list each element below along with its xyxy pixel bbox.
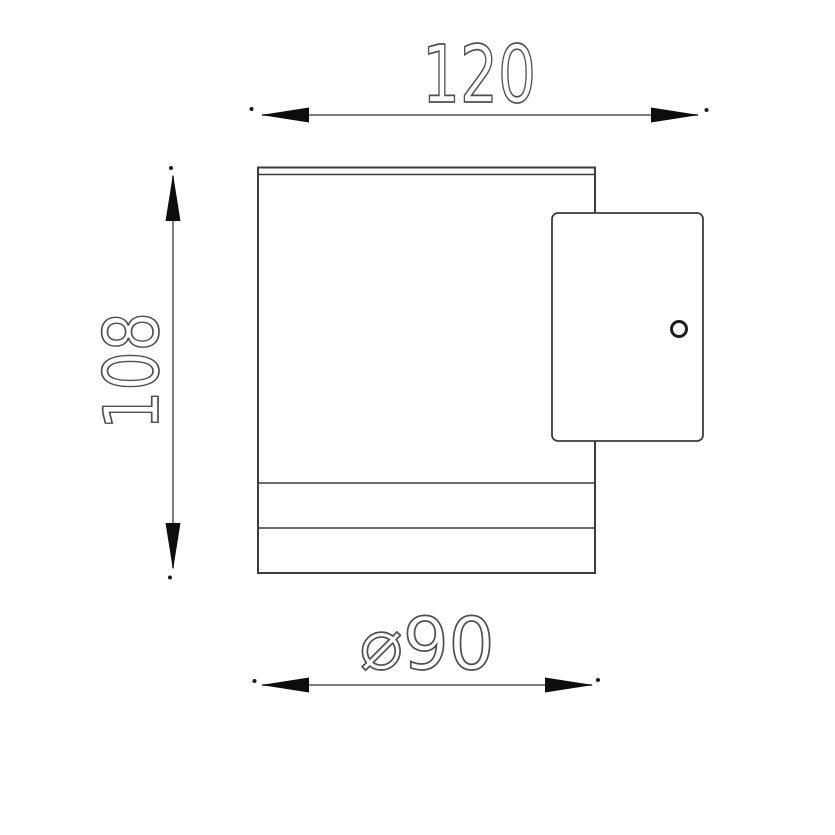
- height-arrowhead-bottom-icon: [166, 523, 181, 570]
- height-dimension: 108: [87, 166, 181, 580]
- lamp-body-outline: [258, 168, 595, 574]
- height-dim-end-dot-top: [169, 166, 173, 170]
- diameter-dim-end-dot-right: [596, 678, 600, 682]
- diameter-arrowhead-left-icon: [261, 678, 309, 693]
- technical-drawing-canvas: 120 108 ⌀90: [0, 0, 835, 835]
- width-dimension-label: 120: [422, 29, 536, 121]
- lamp-body: [258, 168, 595, 574]
- diameter-dimension-label: ⌀90: [360, 602, 495, 686]
- height-dimension-label: 108: [87, 312, 176, 430]
- wall-light-dimension-drawing: 120 108 ⌀90: [0, 0, 835, 835]
- width-arrowhead-right-icon: [651, 108, 699, 123]
- width-arrowhead-left-icon: [261, 108, 309, 123]
- diameter-dimension: ⌀90: [253, 602, 601, 693]
- wall-mount-plate: [552, 213, 703, 441]
- width-dimension: 120: [250, 29, 709, 123]
- diameter-dim-end-dot-left: [253, 679, 257, 683]
- diameter-arrowhead-right-icon: [545, 678, 593, 693]
- height-dim-end-dot-bottom: [168, 576, 172, 580]
- screw-hole: [672, 322, 687, 337]
- width-dim-end-dot-left: [250, 107, 254, 111]
- height-arrowhead-top-icon: [166, 174, 181, 221]
- width-dim-end-dot-right: [705, 108, 709, 112]
